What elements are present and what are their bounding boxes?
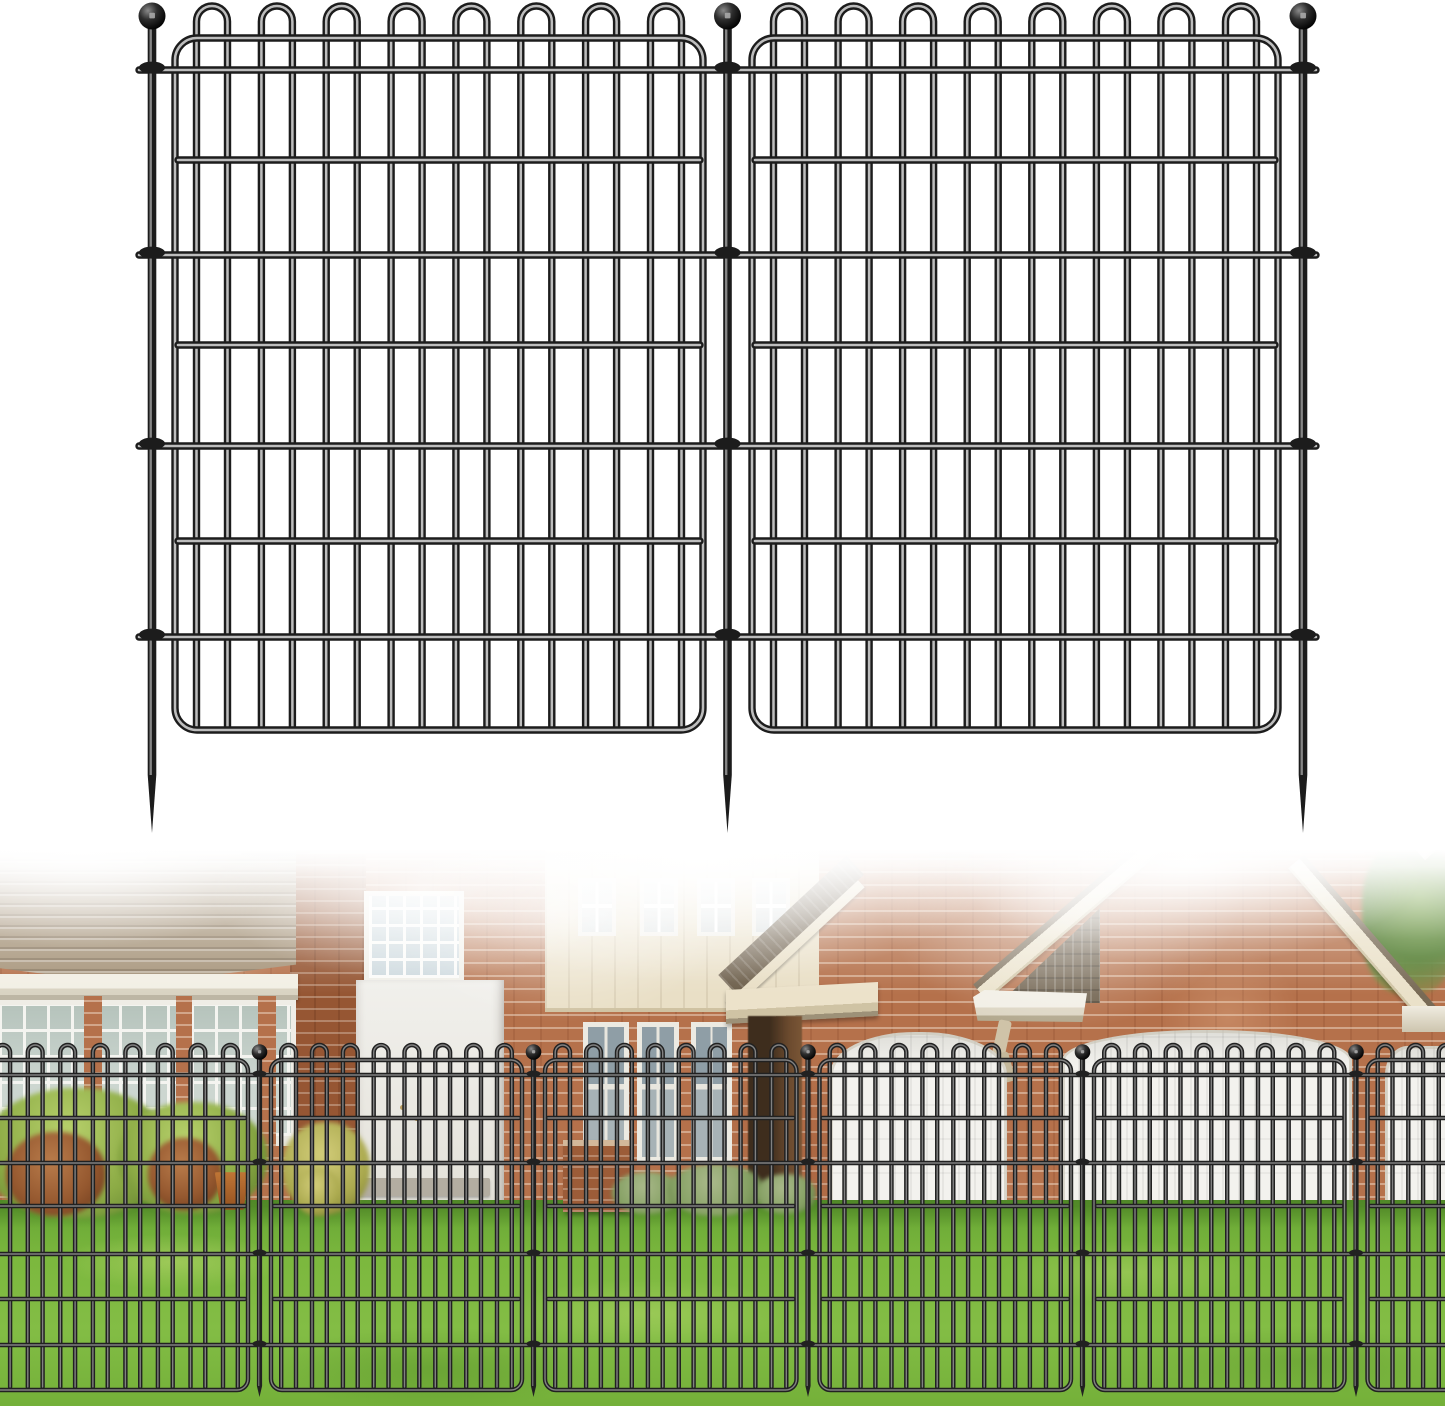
shrub bbox=[756, 1174, 816, 1214]
garage-door-right bbox=[1062, 1030, 1352, 1208]
upper-window bbox=[578, 878, 616, 936]
door-knob bbox=[414, 1116, 419, 1121]
ground-stake bbox=[148, 16, 157, 833]
ball-finial bbox=[1290, 3, 1317, 30]
shrub bbox=[668, 1164, 764, 1216]
roof-gutter bbox=[0, 974, 298, 1000]
ball-finial bbox=[139, 3, 166, 30]
gutter-end-cap bbox=[1402, 1006, 1445, 1032]
wire-clamp bbox=[715, 247, 741, 259]
white-entry-door bbox=[356, 980, 504, 1202]
bush bbox=[6, 1132, 106, 1216]
upper-window bbox=[640, 878, 678, 936]
gutter-fascia bbox=[973, 990, 1087, 1022]
ground-stake bbox=[1299, 16, 1308, 833]
wire-clamp bbox=[139, 62, 165, 74]
lawn bbox=[0, 1200, 1445, 1406]
door-knob bbox=[400, 1105, 405, 1110]
house-scene bbox=[0, 850, 1445, 1406]
garage-door-left bbox=[830, 1032, 1007, 1208]
glass-block-window bbox=[364, 891, 464, 983]
wire-clamp bbox=[139, 629, 165, 641]
wire-clamp bbox=[1290, 629, 1316, 641]
fence-wires bbox=[139, 3, 1317, 834]
left-roof bbox=[0, 850, 296, 984]
ground-stake bbox=[723, 16, 732, 833]
door-step bbox=[358, 1178, 490, 1196]
bush bbox=[295, 1168, 341, 1216]
garage-door-edge bbox=[1385, 1046, 1445, 1208]
wire-clamp bbox=[1290, 438, 1316, 450]
bush bbox=[148, 1138, 222, 1210]
ball-finial bbox=[714, 3, 741, 30]
wire-clamp bbox=[1290, 247, 1316, 259]
upper-window bbox=[697, 878, 735, 936]
fence-panels-render bbox=[0, 0, 1445, 850]
wire-clamp bbox=[715, 62, 741, 74]
wire-clamp bbox=[139, 438, 165, 450]
wire-clamp bbox=[715, 629, 741, 641]
product-image-canvas bbox=[0, 0, 1445, 1406]
brick-pier bbox=[258, 996, 276, 1146]
wire-clamp bbox=[715, 438, 741, 450]
wire-clamp bbox=[139, 247, 165, 259]
wire-clamp bbox=[1290, 62, 1316, 74]
lower-window bbox=[691, 1022, 732, 1162]
lower-window bbox=[637, 1022, 679, 1162]
